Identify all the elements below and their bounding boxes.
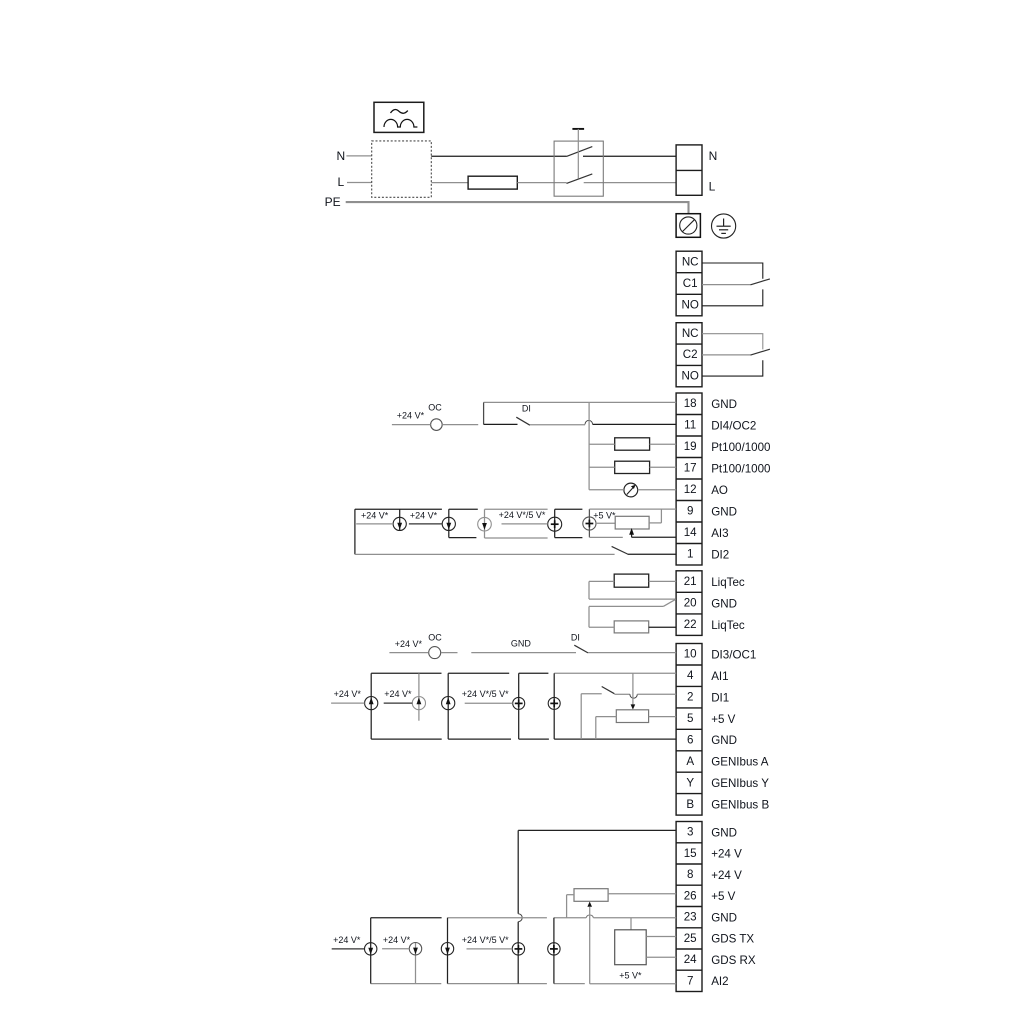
svg-text:Y: Y [686, 776, 694, 789]
svg-text:C1: C1 [683, 277, 698, 290]
svg-text:AI1: AI1 [711, 670, 728, 683]
svg-text:DI1: DI1 [711, 691, 729, 704]
svg-text:DI: DI [571, 633, 580, 643]
svg-text:23: 23 [684, 911, 697, 924]
svg-text:GDS TX: GDS TX [711, 933, 754, 946]
svg-text:DI3/OC1: DI3/OC1 [711, 648, 756, 661]
svg-text:LiqTec: LiqTec [711, 576, 745, 589]
svg-text:+24 V*: +24 V* [361, 511, 389, 521]
svg-text:+5 V*: +5 V* [593, 510, 616, 520]
svg-text:+24 V*: +24 V* [397, 411, 425, 421]
svg-text:25: 25 [684, 932, 697, 945]
svg-text:4: 4 [687, 669, 694, 682]
svg-text:14: 14 [684, 526, 697, 539]
svg-text:15: 15 [684, 847, 697, 860]
svg-text:26: 26 [684, 889, 697, 902]
svg-text:GND: GND [711, 597, 737, 610]
svg-text:21: 21 [684, 575, 697, 588]
svg-text:17: 17 [684, 462, 697, 475]
svg-text:+24 V: +24 V [711, 869, 742, 882]
svg-text:L: L [709, 180, 716, 194]
svg-text:3: 3 [687, 826, 693, 839]
svg-text:PE: PE [325, 195, 341, 209]
svg-text:8: 8 [687, 868, 693, 881]
svg-text:+24 V*/5 V*: +24 V*/5 V* [499, 510, 546, 520]
svg-text:DI2: DI2 [711, 549, 729, 562]
svg-text:GENIbus B: GENIbus B [711, 799, 769, 812]
svg-text:N: N [709, 149, 718, 163]
svg-text:GND: GND [711, 734, 737, 747]
svg-text:+24 V*: +24 V* [410, 511, 438, 521]
svg-text:OC: OC [428, 403, 442, 413]
svg-text:AO: AO [711, 484, 728, 497]
svg-text:C2: C2 [683, 348, 698, 361]
svg-text:NO: NO [682, 370, 699, 383]
svg-text:+5 V: +5 V [711, 890, 735, 903]
svg-text:B: B [686, 798, 694, 811]
svg-text:+5 V: +5 V [711, 713, 735, 726]
svg-text:6: 6 [687, 733, 693, 746]
svg-text:1: 1 [687, 548, 693, 561]
svg-text:+24 V*: +24 V* [384, 689, 412, 699]
svg-text:Pt100/1000: Pt100/1000 [711, 441, 770, 454]
svg-text:L: L [338, 175, 345, 189]
svg-text:NO: NO [682, 298, 699, 311]
svg-text:19: 19 [684, 440, 697, 453]
svg-text:NC: NC [682, 255, 699, 268]
svg-text:24: 24 [684, 953, 697, 966]
svg-text:+24 V: +24 V [711, 848, 742, 861]
svg-text:GND: GND [711, 911, 737, 924]
svg-text:DI: DI [522, 404, 531, 414]
svg-text:N: N [337, 149, 346, 163]
svg-text:GND: GND [711, 826, 737, 839]
svg-text:AI2: AI2 [711, 975, 728, 988]
svg-text:+5 V*: +5 V* [619, 971, 642, 981]
svg-text:OC: OC [428, 633, 442, 643]
svg-text:7: 7 [687, 974, 693, 987]
svg-text:20: 20 [684, 597, 697, 610]
svg-text:2: 2 [687, 691, 693, 704]
svg-text:A: A [686, 755, 694, 768]
svg-text:Pt100/1000: Pt100/1000 [711, 462, 770, 475]
svg-text:LiqTec: LiqTec [711, 619, 745, 632]
svg-text:+24 V*: +24 V* [334, 689, 362, 699]
svg-text:12: 12 [684, 483, 697, 496]
svg-text:GDS RX: GDS RX [711, 954, 756, 967]
svg-text:+24 V*: +24 V* [383, 935, 411, 945]
svg-text:5: 5 [687, 712, 693, 725]
svg-text:9: 9 [687, 505, 693, 518]
svg-text:18: 18 [684, 397, 697, 410]
svg-text:GENIbus A: GENIbus A [711, 756, 769, 769]
svg-text:GENIbus Y: GENIbus Y [711, 777, 769, 790]
svg-text:22: 22 [684, 618, 697, 631]
svg-text:+24 V*/5 V*: +24 V*/5 V* [462, 935, 509, 945]
svg-text:AI3: AI3 [711, 527, 728, 540]
svg-text:+24 V*/5 V*: +24 V*/5 V* [462, 689, 509, 699]
svg-text:GND: GND [711, 506, 737, 519]
svg-text:GND: GND [711, 398, 737, 411]
svg-text:10: 10 [684, 648, 697, 661]
svg-text:11: 11 [684, 419, 696, 432]
svg-text:DI4/OC2: DI4/OC2 [711, 419, 756, 432]
svg-text:+24 V*: +24 V* [333, 935, 361, 945]
svg-text:GND: GND [511, 639, 532, 649]
svg-text:+24 V*: +24 V* [395, 639, 423, 649]
svg-text:NC: NC [682, 327, 699, 340]
